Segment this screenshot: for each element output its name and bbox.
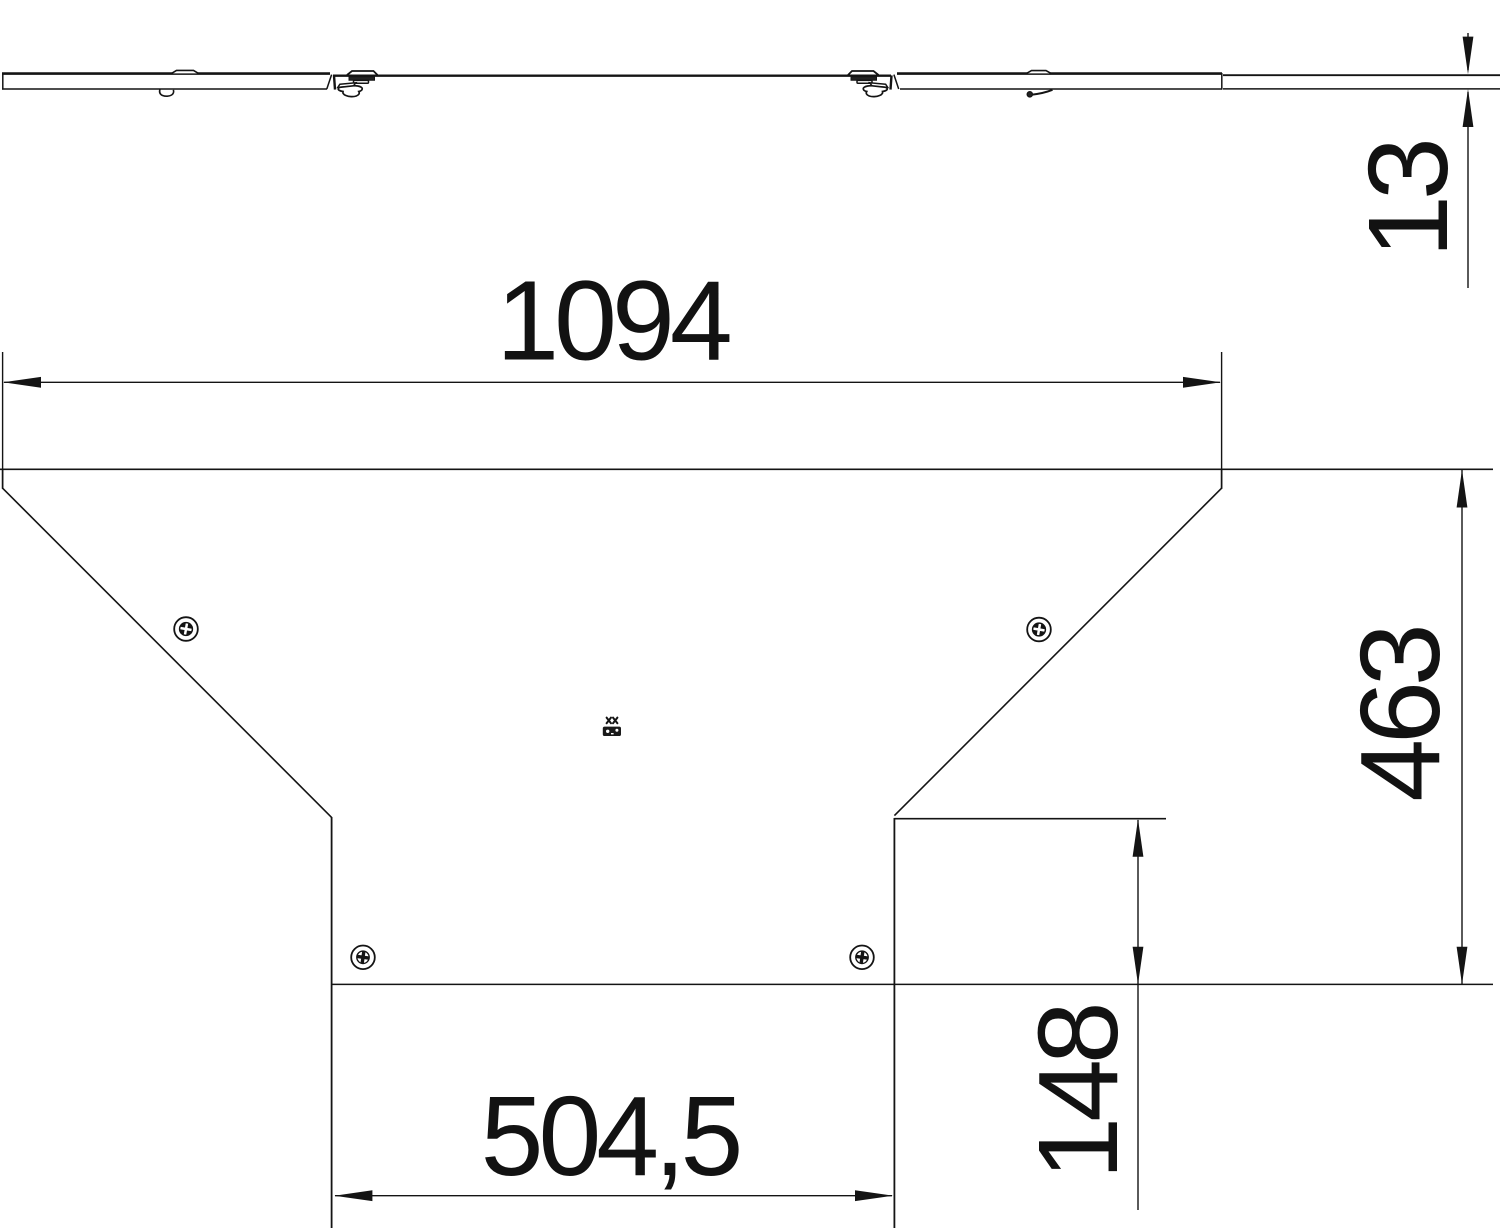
svg-text:148: 148: [1015, 1006, 1141, 1180]
svg-text:13: 13: [1345, 142, 1471, 258]
svg-text:1094: 1094: [496, 257, 730, 383]
svg-text:504,5: 504,5: [481, 1073, 740, 1199]
svg-text:463: 463: [1337, 628, 1463, 802]
